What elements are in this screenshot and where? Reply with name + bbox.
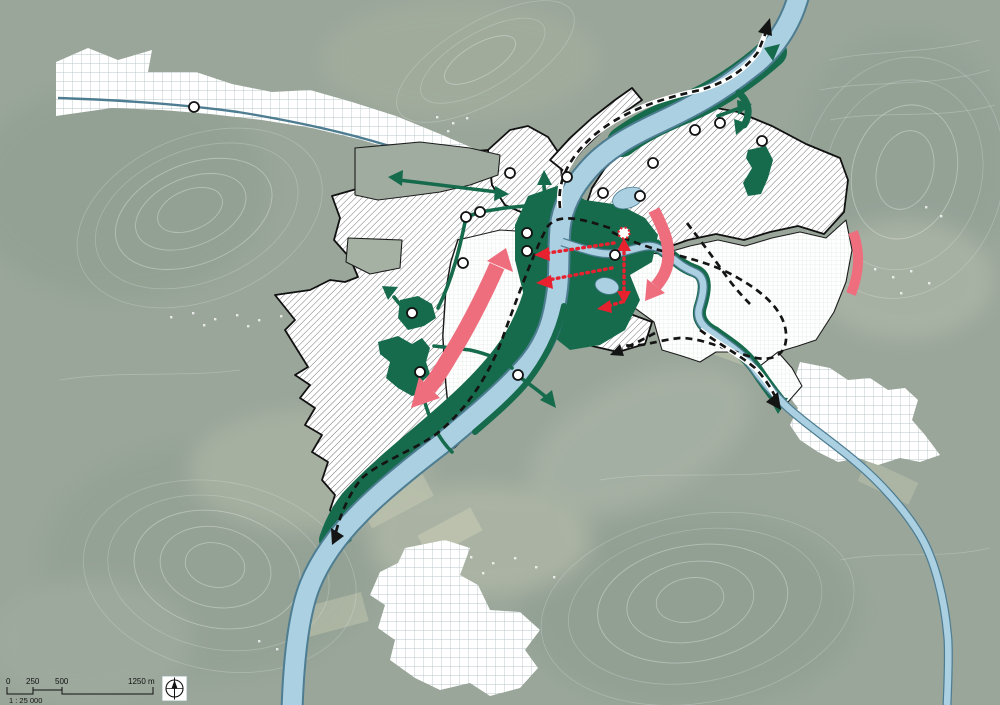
scalebar-tick-0: 0	[6, 677, 11, 686]
node-marker	[458, 258, 468, 268]
urban-plan-map: 0 250 500 1250 m 1 : 25 000	[0, 0, 1000, 705]
node-marker	[690, 125, 700, 135]
node-marker	[610, 250, 620, 260]
map-canvas: 0 250 500 1250 m 1 : 25 000	[0, 0, 1000, 705]
compass-rose-north-icon	[162, 676, 187, 701]
node-marker	[522, 228, 532, 238]
scalebar-tick-250: 250	[26, 677, 40, 686]
node-marker	[189, 102, 199, 112]
scalebar-tick-500: 500	[55, 677, 69, 686]
red-ring-node	[619, 228, 630, 239]
node-marker	[635, 191, 645, 201]
node-marker	[415, 367, 425, 377]
node-marker	[715, 118, 725, 128]
node-marker	[522, 246, 532, 256]
node-marker	[475, 207, 485, 217]
green-stem-north	[544, 186, 545, 200]
node-marker	[461, 212, 471, 222]
node-marker	[505, 168, 515, 178]
node-marker	[562, 172, 572, 182]
node-marker	[598, 188, 608, 198]
node-marker	[407, 308, 417, 318]
scale-ratio-label: 1 : 25 000	[9, 696, 42, 705]
node-marker	[757, 136, 767, 146]
node-marker	[648, 158, 658, 168]
scalebar-end-label: 1250 m	[128, 677, 155, 686]
node-marker	[513, 370, 523, 380]
